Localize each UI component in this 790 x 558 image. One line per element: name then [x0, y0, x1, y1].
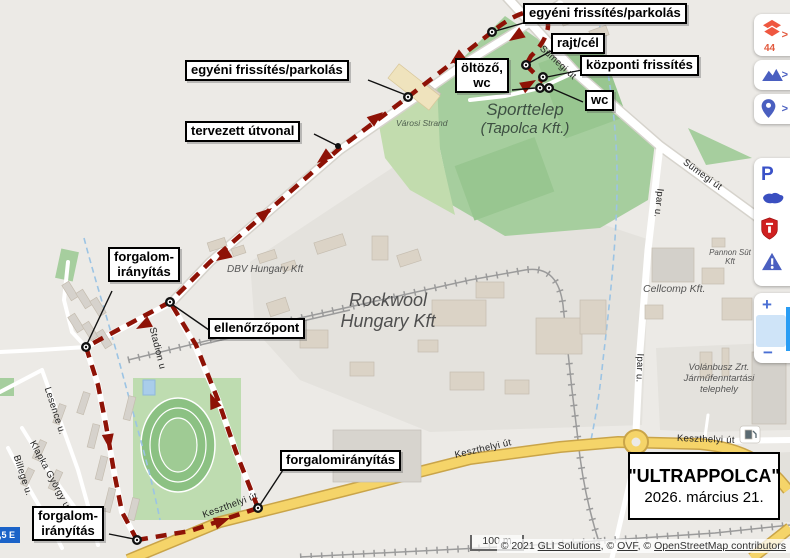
chevron-right-icon: >	[782, 69, 788, 81]
poi-label-cellcomp: Cellcomp Kft.	[643, 283, 705, 295]
label-wc: wc	[585, 90, 614, 111]
warning-triangle-icon	[761, 252, 783, 276]
zoom-out-button[interactable]: −	[763, 343, 773, 363]
label-central-refresh: központi frissítés	[580, 55, 699, 76]
label-start-finish: rajt/cél	[551, 33, 605, 54]
poi-label-rockwool: Rockwool Hungary Kft	[328, 290, 448, 332]
map-pin-icon	[761, 98, 776, 124]
label-traffic-control-mid: forgalomirányítás	[280, 450, 401, 471]
attribution-link-ovf[interactable]: OVF	[617, 540, 637, 552]
fuel-station-icon	[740, 426, 760, 443]
hungary-shape-icon	[761, 191, 785, 210]
chevron-right-icon: >	[782, 103, 788, 115]
poi-label-dbv: DBV Hungary Kft	[227, 264, 303, 275]
poi-label-varosi-strand: Városi Strand	[396, 118, 448, 128]
symbols-panel[interactable]: P	[754, 158, 790, 286]
label-checkpoint: ellenőrzőpont	[208, 318, 305, 339]
parking-icon: P	[761, 165, 774, 184]
label-traffic-control-bottom: forgalom- irányítás	[32, 506, 104, 541]
swimming-pool	[143, 380, 155, 395]
layers-count: 44	[764, 43, 775, 54]
label-traffic-control-left: forgalom- irányítás	[108, 247, 180, 282]
attribution-bar: © 2021 GLI Solutions, © OVF, © OpenStree…	[497, 539, 790, 553]
mountains-icon	[761, 66, 784, 87]
zoom-control: + −	[754, 293, 790, 363]
coat-of-arms-shield-icon	[761, 217, 778, 245]
label-individual-refresh-top: egyéni frissítés/parkolás	[523, 3, 687, 24]
street-label-ipar-2: Ipar u.	[633, 353, 645, 382]
chevron-right-icon: >	[782, 29, 788, 41]
poi-label-sporttelep: Sporttelep (Tapolca Kft.)	[450, 100, 600, 137]
label-planned-route: tervezett útvonal	[185, 121, 300, 142]
zoom-level-bar	[786, 307, 790, 351]
attribution-link-osm[interactable]: OpenStreetMap contributors	[654, 540, 786, 552]
poi-button[interactable]: >	[754, 94, 790, 124]
terrain-button[interactable]: >	[754, 60, 790, 90]
layers-icon	[761, 19, 783, 42]
label-individual-refresh-left: egyéni frissítés/parkolás	[185, 60, 349, 81]
poi-label-volanbusz: Volánbusz Zrt. Járműfenntartási telephel…	[660, 362, 778, 395]
attribution-link-gli[interactable]: GLI Solutions	[538, 540, 601, 552]
distance-badge: ,5 E	[0, 527, 20, 543]
layers-button[interactable]: 44 >	[754, 14, 790, 56]
map-canvas[interactable]: Sümegi út Sümegi út Ipar u. Ipar u. Kesz…	[0, 0, 790, 558]
attribution-prefix: © 2021	[501, 540, 538, 552]
street-label-keszthelyi-2: Keszthelyi út	[677, 433, 735, 446]
label-dressing-room-wc: öltöző, wc	[455, 58, 509, 93]
poi-label-pannon: Pannon Süt Kft	[702, 248, 758, 266]
event-title: "ULTRAPPOLCA"	[628, 466, 780, 487]
event-date: 2026. március 21.	[644, 489, 763, 506]
event-title-box: "ULTRAPPOLCA" 2026. március 21.	[628, 452, 780, 520]
zoom-in-button[interactable]: +	[762, 295, 772, 315]
